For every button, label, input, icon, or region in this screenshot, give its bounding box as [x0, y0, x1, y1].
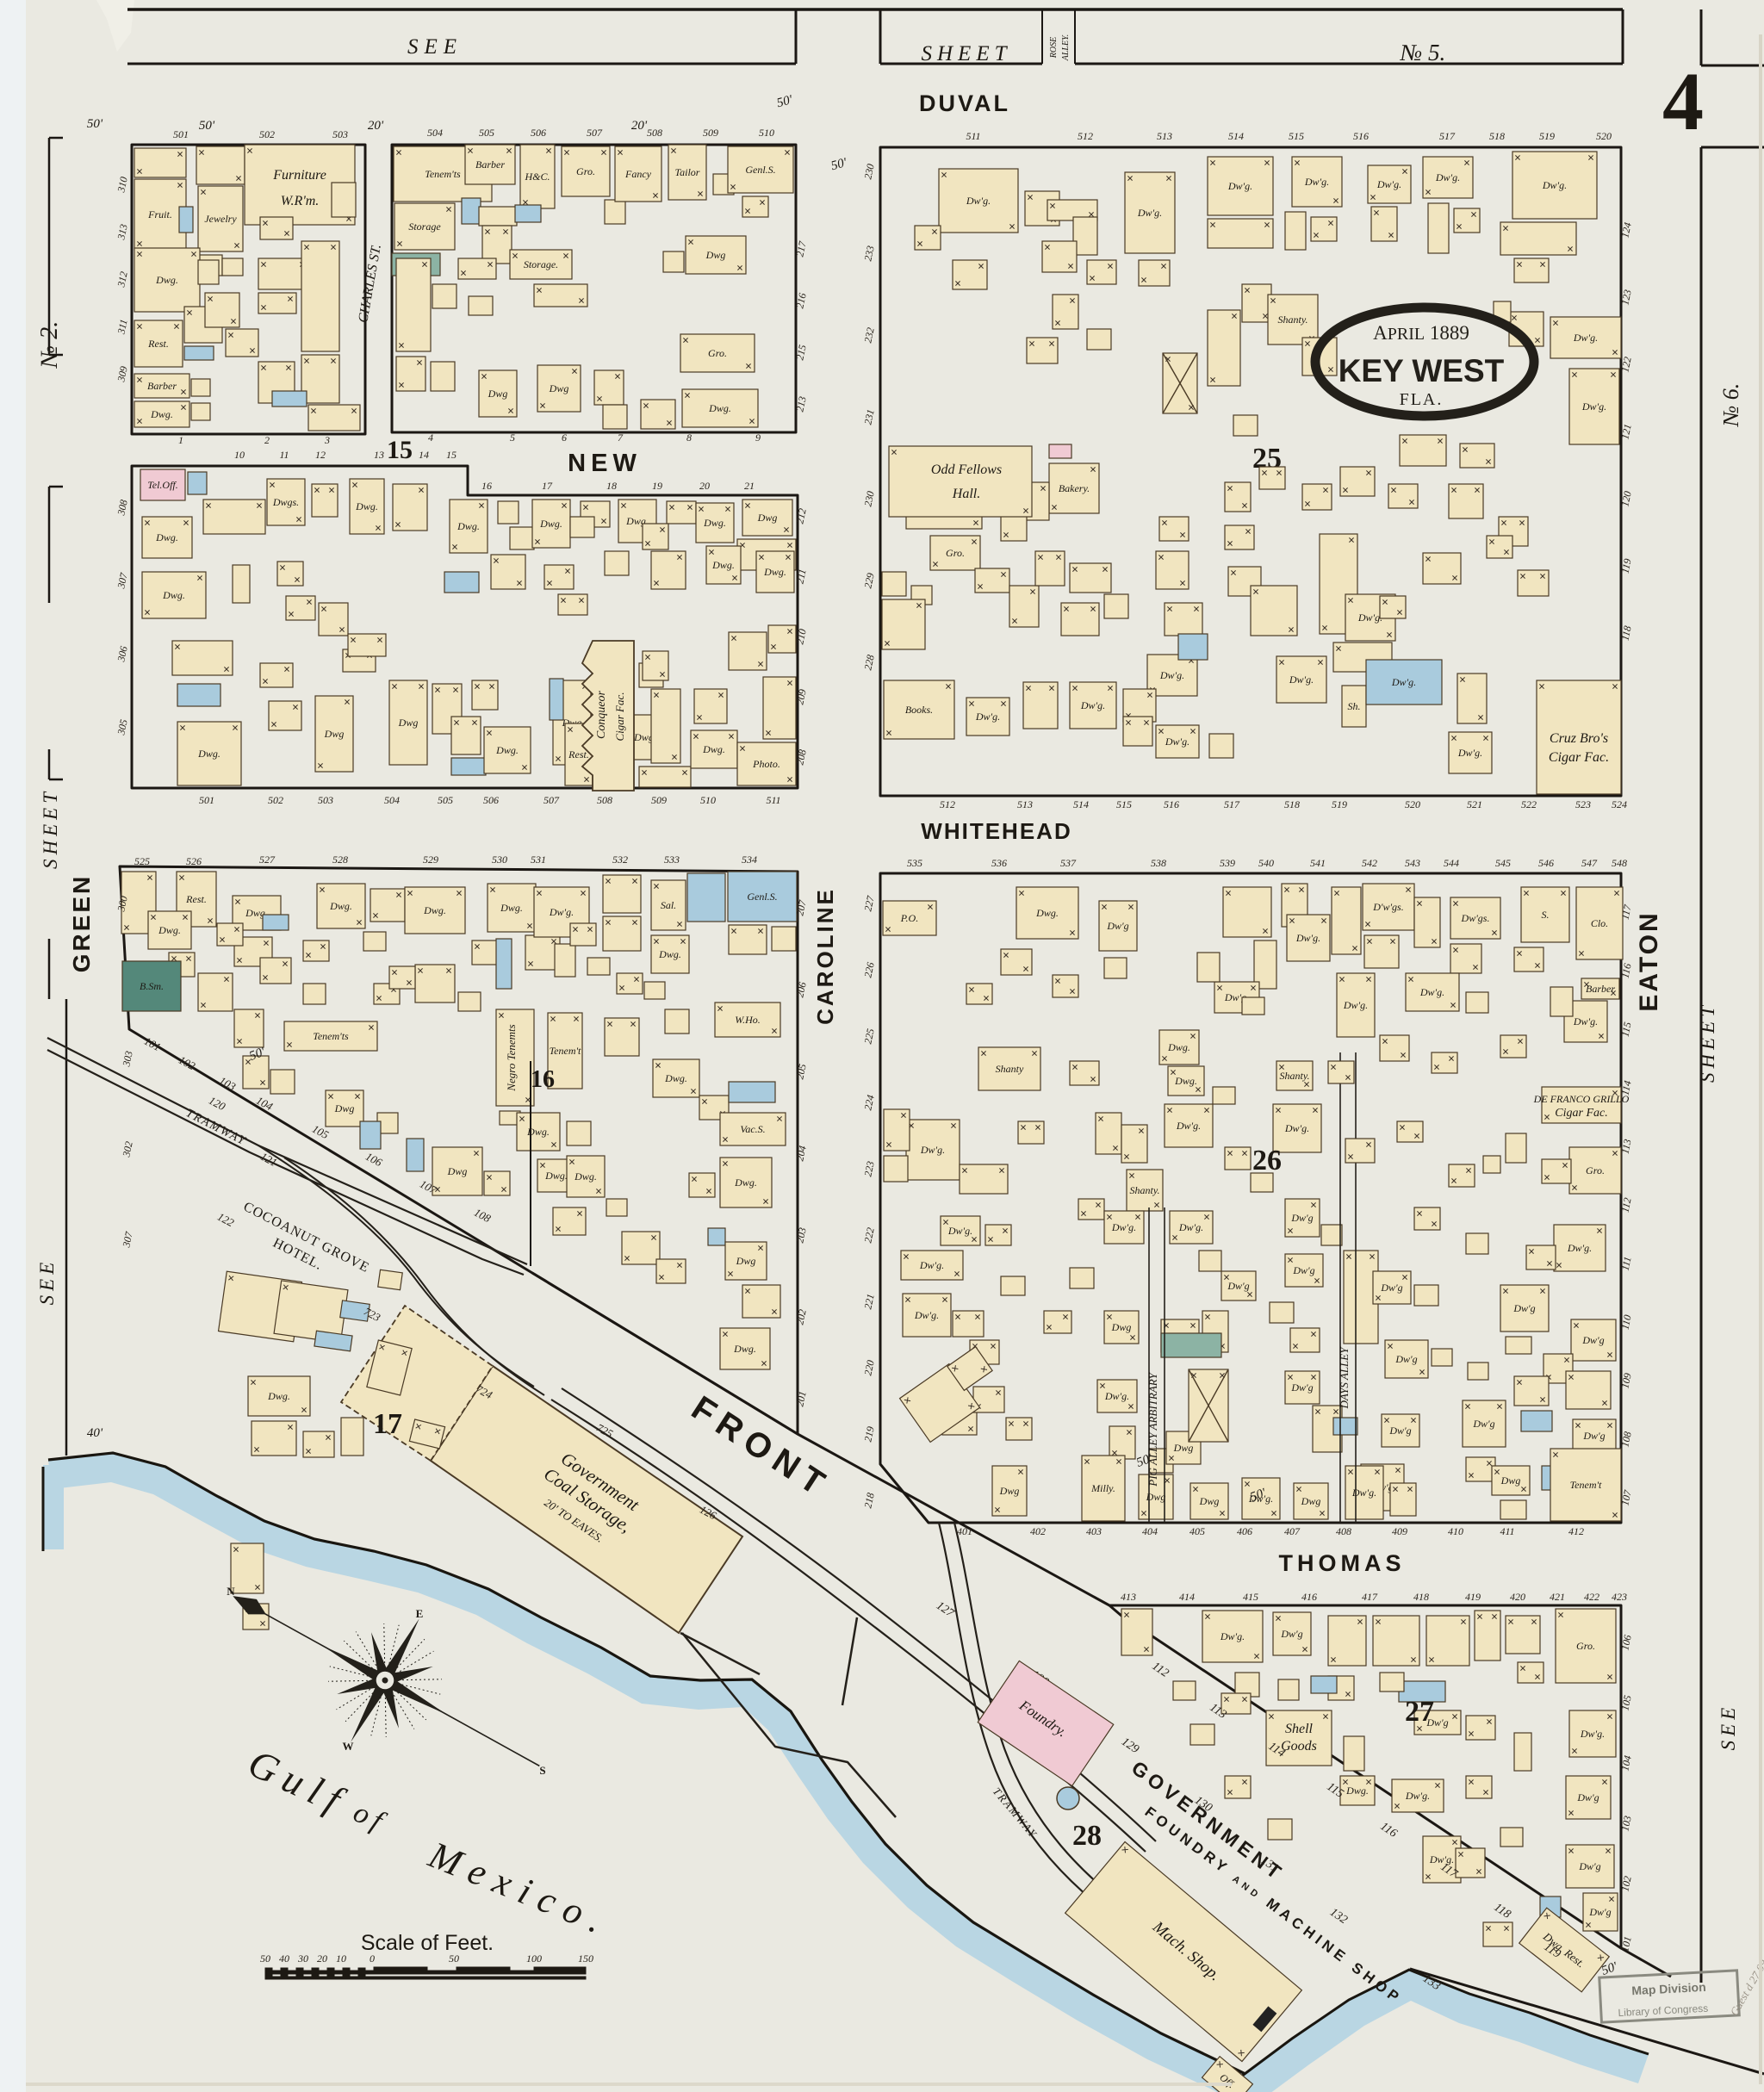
- svg-text:416: 416: [1301, 1591, 1317, 1603]
- svg-text:2: 2: [264, 434, 270, 446]
- svg-text:Shanty.: Shanty.: [1280, 1070, 1310, 1082]
- svg-text:519: 519: [1332, 798, 1347, 810]
- svg-text:Dw'g: Dw'g: [1582, 1430, 1605, 1442]
- svg-text:528: 528: [332, 854, 348, 866]
- svg-text:Dwg: Dwg: [1301, 1495, 1321, 1507]
- svg-text:3: 3: [324, 434, 330, 446]
- svg-text:501: 501: [173, 128, 189, 140]
- svg-text:ROSE: ROSE: [1049, 37, 1059, 59]
- svg-text:№ 2.: № 2.: [36, 321, 63, 369]
- svg-text:Dwg.: Dwg.: [500, 902, 523, 914]
- svg-text:Dw'g: Dw'g: [1292, 1264, 1314, 1276]
- svg-text:Rest.: Rest.: [185, 893, 207, 905]
- svg-text:19: 19: [652, 480, 662, 492]
- svg-text:514: 514: [1073, 798, 1089, 810]
- svg-text:Dw'g.: Dw'g.: [1080, 699, 1105, 711]
- svg-text:419: 419: [1465, 1591, 1481, 1603]
- svg-text:513: 513: [1157, 130, 1172, 142]
- svg-text:ALLEY.: ALLEY.: [1061, 34, 1071, 61]
- svg-text:504: 504: [384, 794, 400, 806]
- svg-text:503: 503: [318, 794, 333, 806]
- svg-text:20: 20: [317, 1952, 327, 1965]
- svg-text:Dwg.: Dwg.: [733, 1343, 756, 1355]
- svg-text:Dw'g: Dw'g: [1576, 1791, 1599, 1803]
- svg-text:Dwgs.: Dwgs.: [272, 496, 299, 508]
- svg-text:Dwg: Dwg: [757, 512, 778, 524]
- svg-text:539: 539: [1220, 857, 1235, 869]
- svg-text:546: 546: [1538, 857, 1554, 869]
- svg-text:Dw'g.: Dw'g.: [1111, 1221, 1136, 1233]
- svg-text:545: 545: [1495, 857, 1511, 869]
- svg-text:1: 1: [178, 434, 183, 446]
- svg-text:H&C.: H&C.: [524, 171, 550, 183]
- svg-text:Tailor: Tailor: [675, 166, 700, 178]
- svg-text:Dw'g.: Dw'g.: [966, 195, 991, 207]
- svg-text:Fancy: Fancy: [624, 168, 652, 180]
- svg-text:PIG ALLEY ARBITRARY: PIG ALLEY ARBITRARY: [1146, 1372, 1159, 1487]
- svg-text:Books.: Books.: [905, 704, 933, 716]
- svg-text:Dw'g.: Dw'g.: [1419, 986, 1444, 998]
- svg-text:Dw'g: Dw'g: [1280, 1628, 1302, 1640]
- svg-text:Dw'g.: Dw'g.: [1304, 176, 1329, 188]
- svg-text:517: 517: [1224, 798, 1240, 810]
- svg-text:Dwg.: Dwg.: [708, 402, 731, 414]
- svg-text:508: 508: [597, 794, 612, 806]
- svg-text:Dw'g: Dw'g: [1290, 1381, 1313, 1394]
- svg-text:9: 9: [755, 431, 761, 444]
- svg-text:S: S: [539, 1764, 545, 1777]
- svg-text:515: 515: [1116, 798, 1132, 810]
- svg-text:531: 531: [531, 854, 546, 866]
- svg-text:421: 421: [1550, 1591, 1565, 1603]
- svg-text:Cigar Fac.: Cigar Fac.: [1555, 1107, 1607, 1120]
- svg-text:NEW: NEW: [568, 450, 642, 477]
- svg-text:Odd Fellows: Odd Fellows: [931, 462, 1002, 477]
- svg-text:Dw'g.: Dw'g.: [1165, 736, 1189, 748]
- svg-text:Jewelry: Jewelry: [204, 213, 237, 225]
- svg-text:502: 502: [268, 794, 283, 806]
- svg-text:Goods: Goods: [1281, 1739, 1317, 1754]
- svg-text:5: 5: [510, 431, 515, 444]
- svg-text:Milly.: Milly.: [1090, 1482, 1115, 1494]
- svg-text:520: 520: [1596, 130, 1612, 142]
- svg-text:Dw'g.: Dw'g.: [1284, 1122, 1309, 1134]
- svg-text:Dwg: Dwg: [1111, 1321, 1132, 1333]
- svg-text:512: 512: [940, 798, 955, 810]
- svg-text:17: 17: [542, 480, 553, 492]
- svg-text:547: 547: [1581, 857, 1598, 869]
- svg-text:Dwg.: Dwg.: [1174, 1075, 1197, 1087]
- svg-text:538: 538: [1151, 857, 1166, 869]
- svg-text:Sal.: Sal.: [661, 899, 676, 911]
- svg-text:Dw'g: Dw'g: [1581, 1334, 1604, 1346]
- svg-text:Dwg.: Dwg.: [1167, 1041, 1190, 1053]
- svg-text:16: 16: [531, 1066, 555, 1093]
- svg-text:50: 50: [449, 1952, 459, 1965]
- svg-text:508: 508: [647, 127, 662, 139]
- svg-text:Dw'g: Dw'g: [1227, 1280, 1249, 1292]
- svg-text:548: 548: [1612, 857, 1627, 869]
- svg-text:SEE: SEE: [407, 35, 463, 59]
- svg-text:Dw'g.: Dw'g.: [1220, 1630, 1245, 1642]
- svg-text:511: 511: [766, 794, 780, 806]
- svg-text:Hall.: Hall.: [952, 487, 980, 501]
- svg-text:417: 417: [1362, 1591, 1378, 1603]
- svg-text:Dwg: Dwg: [999, 1485, 1020, 1497]
- svg-text:409: 409: [1392, 1525, 1407, 1537]
- svg-text:P.O.: P.O.: [900, 912, 918, 924]
- svg-text:Scale of Feet.: Scale of Feet.: [361, 1931, 494, 1955]
- svg-text:27: 27: [1405, 1696, 1434, 1728]
- svg-text:Dwg: Dwg: [1500, 1474, 1521, 1487]
- svg-text:50': 50': [199, 119, 215, 133]
- svg-text:509: 509: [703, 127, 718, 139]
- svg-text:Dw'g.: Dw'g.: [1178, 1221, 1203, 1233]
- svg-text:15: 15: [387, 436, 413, 464]
- svg-text:W: W: [343, 1740, 354, 1753]
- svg-text:407: 407: [1284, 1525, 1301, 1537]
- svg-text:Shell: Shell: [1285, 1722, 1314, 1736]
- svg-text:408: 408: [1336, 1525, 1351, 1537]
- svg-text:Dw'g.: Dw'g.: [1573, 332, 1598, 344]
- svg-text:513: 513: [1017, 798, 1033, 810]
- svg-text:511: 511: [966, 130, 980, 142]
- svg-text:Dwg.: Dwg.: [495, 744, 519, 756]
- svg-text:FLA.: FLA.: [1400, 390, 1444, 409]
- svg-text:505: 505: [479, 127, 494, 139]
- svg-text:Dwg.: Dwg.: [355, 500, 378, 512]
- svg-text:415: 415: [1243, 1591, 1258, 1603]
- svg-text:Dw'g.: Dw'g.: [1176, 1120, 1201, 1132]
- svg-text:Dw'g.: Dw'g.: [919, 1259, 944, 1271]
- svg-text:DE FRANCO GRILLO: DE FRANCO GRILLO: [1533, 1093, 1630, 1105]
- svg-text:Fruit.: Fruit.: [147, 208, 172, 220]
- svg-text:526: 526: [186, 855, 202, 867]
- svg-text:4: 4: [428, 431, 433, 444]
- svg-text:10: 10: [234, 449, 245, 461]
- svg-text:Clo.: Clo.: [1591, 917, 1608, 929]
- svg-text:Dw'g.: Dw'g.: [1457, 747, 1482, 759]
- svg-text:Dw'g.: Dw'g.: [1573, 1015, 1598, 1027]
- svg-text:Dw'g.: Dw'g.: [1391, 676, 1416, 688]
- svg-text:Dw'g.: Dw'g.: [1227, 180, 1252, 192]
- svg-text:Dw'g: Dw'g: [1394, 1353, 1417, 1365]
- svg-text:Dwg.: Dwg.: [763, 566, 786, 578]
- svg-text:529: 529: [423, 854, 438, 866]
- svg-text:509: 509: [651, 794, 667, 806]
- svg-text:Dw'g.: Dw'g.: [947, 1225, 972, 1237]
- svg-text:20: 20: [699, 480, 710, 492]
- svg-text:405: 405: [1189, 1525, 1205, 1537]
- svg-text:Dwg.: Dwg.: [734, 1176, 757, 1189]
- svg-text:Dw'g: Dw'g: [1380, 1282, 1402, 1294]
- svg-text:Dw'g.: Dw'g.: [1376, 178, 1401, 190]
- svg-text:Dw'g: Dw'g: [1512, 1302, 1535, 1314]
- svg-text:Barber: Barber: [147, 380, 177, 392]
- svg-text:517: 517: [1439, 130, 1456, 142]
- svg-text:SEE: SEE: [36, 1258, 58, 1306]
- svg-text:Gro.: Gro.: [1576, 1640, 1595, 1652]
- svg-text:506: 506: [531, 127, 546, 139]
- svg-text:4: 4: [1662, 55, 1704, 147]
- svg-text:535: 535: [907, 857, 922, 869]
- svg-text:544: 544: [1444, 857, 1459, 869]
- svg-text:Bakery.: Bakery.: [1059, 482, 1090, 494]
- svg-text:Gro.: Gro.: [708, 347, 727, 359]
- svg-text:Dw'g: Dw'g: [1472, 1418, 1494, 1430]
- svg-text:18: 18: [606, 480, 617, 492]
- svg-text:Dw'g: Dw'g: [1290, 1212, 1313, 1224]
- svg-text:Dwg.: Dwg.: [155, 531, 178, 543]
- svg-text:21: 21: [744, 480, 755, 492]
- svg-text:503: 503: [332, 128, 348, 140]
- svg-text:418: 418: [1413, 1591, 1429, 1603]
- svg-text:10: 10: [336, 1952, 346, 1965]
- svg-text:Storage: Storage: [408, 220, 441, 233]
- svg-text:DUVAL: DUVAL: [919, 90, 1010, 116]
- svg-text:Storage.: Storage.: [524, 258, 558, 270]
- svg-text:Dwg: Dwg: [736, 1255, 756, 1267]
- svg-text:401: 401: [957, 1525, 972, 1537]
- svg-text:Dwg.: Dwg.: [711, 559, 735, 571]
- svg-text:Dw'g.: Dw'g.: [920, 1144, 945, 1156]
- svg-text:Dwg.: Dwg.: [574, 1170, 597, 1183]
- svg-text:Barber: Barber: [475, 158, 505, 171]
- svg-text:W.Ho.: W.Ho.: [735, 1014, 761, 1026]
- svg-text:APRIL 1889: APRIL 1889: [1373, 322, 1469, 344]
- svg-text:Dwg.: Dwg.: [150, 408, 173, 420]
- svg-text:Shanty.: Shanty.: [1130, 1184, 1160, 1196]
- svg-text:Furniture: Furniture: [272, 168, 326, 183]
- svg-text:Dw'g.: Dw'g.: [1104, 1390, 1129, 1402]
- svg-text:Negro Tenemts: Negro Tenemts: [505, 1024, 518, 1091]
- svg-text:543: 543: [1405, 857, 1420, 869]
- svg-text:0: 0: [370, 1952, 375, 1965]
- svg-text:Dwg.: Dwg.: [423, 904, 446, 916]
- svg-text:Dw'g.: Dw'g.: [1357, 611, 1382, 624]
- svg-text:Gro.: Gro.: [576, 165, 595, 177]
- svg-text:Dw'g.: Dw'g.: [1137, 207, 1162, 219]
- svg-text:Barber: Barber: [1586, 983, 1615, 995]
- svg-text:SHEET: SHEET: [1697, 1002, 1718, 1083]
- svg-text:Tenem't: Tenem't: [1570, 1479, 1602, 1491]
- svg-text:Dwg.: Dwg.: [539, 518, 562, 530]
- svg-text:Dw'g: Dw'g: [1106, 920, 1128, 932]
- svg-text:525: 525: [134, 855, 150, 867]
- svg-text:520: 520: [1405, 798, 1420, 810]
- svg-text:E: E: [416, 1607, 424, 1620]
- svg-text:Dwg.: Dwg.: [155, 274, 178, 286]
- svg-text:Shanty: Shanty: [996, 1063, 1024, 1075]
- svg-text:422: 422: [1584, 1591, 1599, 1603]
- svg-text:519: 519: [1539, 130, 1555, 142]
- svg-text:423: 423: [1612, 1591, 1627, 1603]
- svg-text:Tenem'ts: Tenem'ts: [425, 168, 461, 180]
- svg-text:524: 524: [1612, 798, 1627, 810]
- svg-text:410: 410: [1448, 1525, 1463, 1537]
- svg-text:Dw'g.: Dw'g.: [549, 906, 574, 918]
- svg-text:28: 28: [1072, 1820, 1102, 1852]
- svg-text:523: 523: [1575, 798, 1591, 810]
- svg-text:Dwg.: Dwg.: [703, 517, 726, 529]
- svg-text:522: 522: [1521, 798, 1537, 810]
- svg-text:510: 510: [759, 127, 774, 139]
- svg-text:402: 402: [1030, 1525, 1046, 1537]
- svg-text:504: 504: [427, 127, 443, 139]
- svg-text:514: 514: [1228, 130, 1244, 142]
- svg-text:Dwg: Dwg: [334, 1102, 355, 1114]
- svg-text:SHEET: SHEET: [40, 788, 61, 869]
- svg-text:Genl.S.: Genl.S.: [747, 891, 777, 903]
- svg-text:Dw'g.: Dw'g.: [1581, 400, 1606, 413]
- svg-text:Gro.: Gro.: [1586, 1164, 1605, 1176]
- svg-text:Dwg.: Dwg.: [457, 520, 480, 532]
- svg-text:150: 150: [578, 1952, 593, 1965]
- svg-text:Dwg: Dwg: [488, 388, 508, 400]
- svg-text:Dw'g: Dw'g: [1588, 1906, 1611, 1918]
- svg-text:413: 413: [1121, 1591, 1136, 1603]
- svg-text:6: 6: [562, 431, 567, 444]
- svg-text:Dwg.: Dwg.: [664, 1072, 687, 1084]
- svg-text:414: 414: [1179, 1591, 1195, 1603]
- svg-text:20': 20': [631, 119, 648, 133]
- svg-text:Dw'g.: Dw'g.: [1289, 674, 1314, 686]
- svg-text:Dw'g.: Dw'g.: [1435, 171, 1460, 183]
- svg-text:537: 537: [1060, 857, 1077, 869]
- svg-text:Shanty.: Shanty.: [1278, 313, 1308, 326]
- svg-text:№ 6.: № 6.: [1718, 383, 1743, 428]
- svg-text:406: 406: [1237, 1525, 1252, 1537]
- svg-text:DAYS ALLEY: DAYS ALLEY: [1338, 1346, 1351, 1410]
- svg-text:521: 521: [1467, 798, 1482, 810]
- svg-text:541: 541: [1310, 857, 1326, 869]
- svg-text:534: 534: [742, 854, 757, 866]
- svg-text:Dwg.: Dwg.: [329, 900, 352, 912]
- svg-text:Dwg.: Dwg.: [267, 1390, 290, 1402]
- svg-text:Dw'g.: Dw'g.: [914, 1309, 939, 1321]
- svg-text:518: 518: [1489, 130, 1505, 142]
- svg-text:Dw'gs.: Dw'gs.: [1461, 912, 1490, 924]
- svg-text:Dwg.: Dwg.: [658, 948, 681, 960]
- svg-text:Dw'g.: Dw'g.: [1159, 669, 1184, 681]
- svg-text:Dwg: Dwg: [398, 717, 419, 729]
- svg-text:411: 411: [1500, 1525, 1514, 1537]
- svg-text:GREEN: GREEN: [68, 874, 95, 973]
- svg-text:16: 16: [481, 480, 492, 492]
- svg-text:B.Sm.: B.Sm.: [140, 980, 164, 992]
- svg-text:KEY WEST: KEY WEST: [1339, 353, 1505, 388]
- svg-text:N: N: [227, 1585, 235, 1598]
- svg-text:542: 542: [1362, 857, 1377, 869]
- svg-text:Dw'g.: Dw'g.: [1343, 999, 1368, 1011]
- svg-text:Gro.: Gro.: [946, 547, 965, 559]
- svg-text:Dwg.: Dwg.: [197, 748, 220, 760]
- svg-text:Dwg: Dwg: [1173, 1442, 1194, 1454]
- svg-text:Dw'g.: Dw'g.: [1542, 179, 1567, 191]
- svg-text:13: 13: [374, 449, 384, 461]
- svg-text:Vac.S.: Vac.S.: [740, 1123, 765, 1135]
- svg-text:15: 15: [446, 449, 457, 461]
- svg-text:516: 516: [1353, 130, 1369, 142]
- svg-text:EATON: EATON: [1635, 910, 1663, 1011]
- svg-text:Tenem't: Tenem't: [550, 1045, 581, 1057]
- svg-text:40: 40: [279, 1952, 289, 1965]
- svg-text:512: 512: [1078, 130, 1093, 142]
- svg-text:532: 532: [612, 854, 628, 866]
- svg-text:420: 420: [1510, 1591, 1525, 1603]
- svg-text:Dwg: Dwg: [1199, 1495, 1220, 1507]
- svg-text:Dwg: Dwg: [447, 1165, 468, 1177]
- svg-text:50: 50: [260, 1952, 270, 1965]
- svg-text:Dw'g.: Dw'g.: [1295, 932, 1320, 944]
- svg-text:W.R'm.: W.R'm.: [281, 194, 320, 208]
- svg-text:507: 507: [543, 794, 560, 806]
- svg-text:17: 17: [373, 1408, 402, 1440]
- svg-text:7: 7: [618, 431, 624, 444]
- svg-text:12: 12: [315, 449, 326, 461]
- svg-text:30: 30: [297, 1952, 308, 1965]
- svg-text:506: 506: [483, 794, 499, 806]
- svg-text:20': 20': [368, 119, 384, 133]
- svg-text:Dw'g.: Dw'g.: [1567, 1242, 1592, 1254]
- svg-text:Dwg.: Dwg.: [702, 743, 725, 755]
- svg-text:THOMAS: THOMAS: [1279, 1550, 1406, 1576]
- svg-text:100: 100: [526, 1952, 542, 1965]
- svg-text:Cigar Fac.: Cigar Fac.: [613, 692, 626, 741]
- svg-text:510: 510: [700, 794, 716, 806]
- svg-text:Cruz Bro's: Cruz Bro's: [1550, 731, 1608, 746]
- svg-text:Dwg: Dwg: [324, 728, 345, 740]
- svg-text:540: 540: [1258, 857, 1274, 869]
- svg-text:Tel.Off.: Tel.Off.: [147, 479, 178, 491]
- svg-text:Dwg.: Dwg.: [544, 1170, 568, 1182]
- svg-text:Dwg.: Dwg.: [158, 924, 181, 936]
- svg-text:507: 507: [587, 127, 603, 139]
- svg-text:CAROLINE: CAROLINE: [812, 887, 838, 1025]
- svg-text:Rest.: Rest.: [147, 338, 169, 350]
- svg-text:Dw'g: Dw'g: [1388, 1425, 1411, 1437]
- svg-text:SEE: SEE: [1717, 1704, 1739, 1751]
- svg-text:Dw'g.: Dw'g.: [1580, 1728, 1605, 1740]
- svg-text:536: 536: [991, 857, 1007, 869]
- svg-text:Tenem'ts: Tenem'ts: [313, 1030, 349, 1042]
- svg-text:Dwg.: Dwg.: [162, 589, 185, 601]
- svg-text:SHEET: SHEET: [922, 42, 1012, 65]
- svg-text:50': 50': [87, 117, 103, 131]
- svg-text:412: 412: [1568, 1525, 1584, 1537]
- svg-text:527: 527: [259, 854, 276, 866]
- svg-text:Genl.S.: Genl.S.: [745, 164, 775, 176]
- svg-text:530: 530: [492, 854, 507, 866]
- svg-text:533: 533: [664, 854, 680, 866]
- svg-text:Dwg: Dwg: [549, 382, 569, 394]
- svg-text:D'w'gs.: D'w'gs.: [1372, 901, 1403, 913]
- svg-text:502: 502: [259, 128, 275, 140]
- svg-text:516: 516: [1164, 798, 1179, 810]
- svg-text:Photo.: Photo.: [752, 758, 780, 770]
- svg-text:501: 501: [199, 794, 214, 806]
- svg-text:11: 11: [279, 449, 289, 461]
- svg-text:40': 40': [87, 1426, 103, 1440]
- svg-text:Dwg: Dwg: [705, 249, 726, 261]
- svg-text:Sh.: Sh.: [1348, 700, 1361, 712]
- svg-text:8: 8: [686, 431, 692, 444]
- svg-text:Dw'g.: Dw'g.: [975, 711, 1000, 723]
- svg-text:403: 403: [1086, 1525, 1102, 1537]
- svg-text:Cigar Fac.: Cigar Fac.: [1549, 750, 1609, 765]
- svg-text:Dwg.: Dwg.: [1345, 1785, 1369, 1797]
- svg-text:Dw'g.: Dw'g.: [1405, 1790, 1430, 1802]
